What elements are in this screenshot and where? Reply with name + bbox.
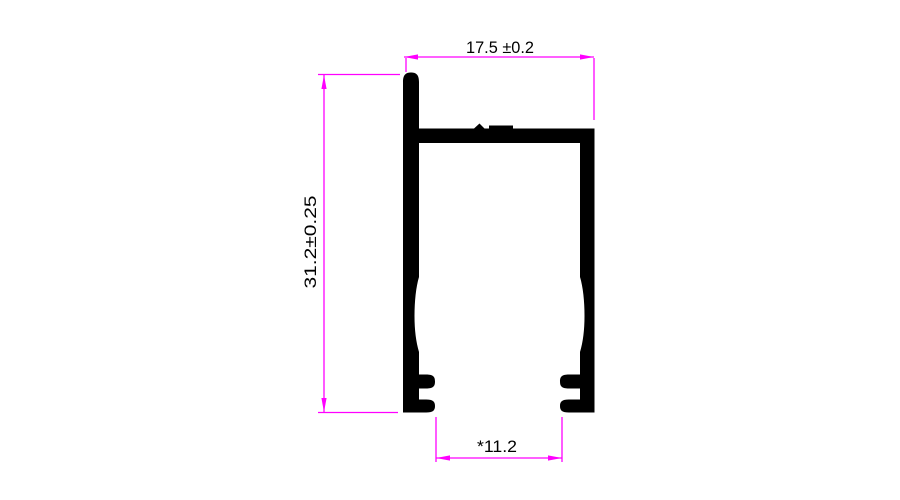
dimension-label-bottom-width: *11.2 bbox=[477, 437, 517, 456]
drawing-canvas: 17.5 ±0.2 31.2±0.25 *11.2 bbox=[0, 0, 900, 500]
extrusion-profile-section bbox=[403, 73, 595, 413]
dimension-label-left-height: 31.2±0.25 bbox=[301, 196, 320, 289]
dimension-label-top-width: 17.5 ±0.2 bbox=[466, 38, 534, 57]
dimension-lines bbox=[318, 57, 594, 462]
arrowhead-height-bottom bbox=[321, 398, 326, 412]
arrowhead-bottom-left bbox=[436, 455, 450, 460]
dimension-arrowheads bbox=[321, 54, 594, 460]
technical-drawing: 17.5 ±0.2 31.2±0.25 *11.2 bbox=[0, 0, 900, 500]
arrowhead-bottom-right bbox=[548, 455, 562, 460]
arrowhead-top-right bbox=[580, 54, 594, 59]
arrowhead-height-top bbox=[321, 75, 326, 89]
